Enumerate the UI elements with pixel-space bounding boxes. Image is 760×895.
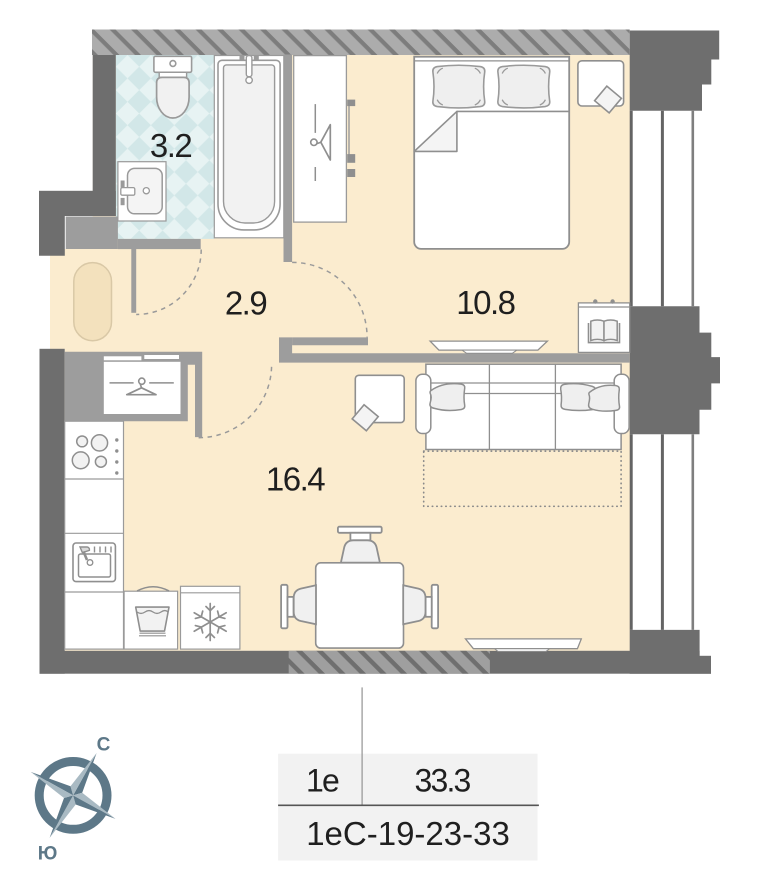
- svg-text:3.2: 3.2: [150, 127, 192, 164]
- svg-text:16.4: 16.4: [266, 461, 325, 498]
- svg-text:2.9: 2.9: [225, 285, 267, 322]
- svg-text:Ю: Ю: [38, 844, 58, 865]
- svg-text:1еС-19-23-33: 1еС-19-23-33: [306, 815, 510, 852]
- svg-text:10.8: 10.8: [456, 284, 514, 321]
- svg-text:С: С: [97, 735, 111, 756]
- svg-text:33.3: 33.3: [414, 763, 470, 799]
- svg-text:1е: 1е: [306, 763, 339, 799]
